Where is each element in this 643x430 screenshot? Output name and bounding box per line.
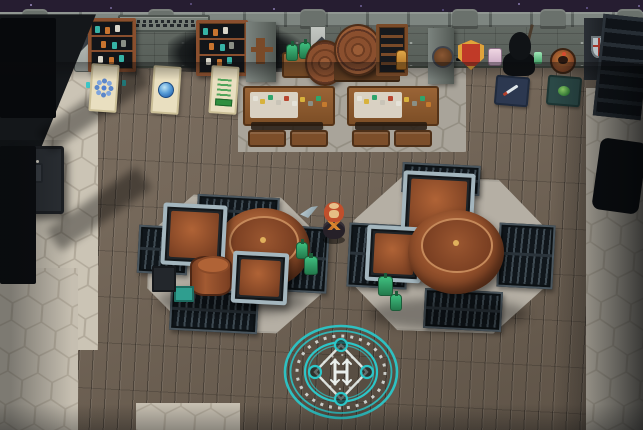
round-shield-icon bbox=[432, 46, 454, 68]
player-hood bbox=[324, 202, 344, 222]
shelf-items bbox=[203, 28, 208, 35]
player-hair bbox=[329, 203, 339, 209]
wall-pillar bbox=[428, 28, 454, 84]
food-items bbox=[253, 96, 258, 101]
green-orb-icon bbox=[558, 85, 571, 96]
display-mat-orb[interactable] bbox=[546, 75, 582, 108]
dark-box bbox=[152, 266, 176, 292]
keg-rack[interactable] bbox=[334, 22, 406, 84]
hex-floor-bottom-left bbox=[0, 268, 78, 430]
bench[interactable] bbox=[394, 130, 432, 147]
bench[interactable] bbox=[248, 130, 286, 147]
dark-column bbox=[0, 146, 36, 284]
player-character[interactable] bbox=[320, 202, 348, 244]
hex-floor-bottom-patch bbox=[136, 403, 240, 430]
dark-object-right bbox=[591, 137, 643, 215]
amber-bottle bbox=[396, 50, 407, 70]
wall-pillar-cap bbox=[452, 9, 478, 29]
banquet-table-right[interactable] bbox=[347, 84, 435, 142]
potion-bottle bbox=[286, 44, 298, 61]
wall-item-green bbox=[534, 52, 542, 64]
food-items bbox=[357, 96, 362, 101]
brewing-station-right[interactable] bbox=[352, 164, 552, 324]
red-gold-shield-icon bbox=[458, 40, 484, 70]
table-top bbox=[347, 86, 439, 126]
cauldron[interactable] bbox=[550, 48, 576, 74]
hooded-npc[interactable] bbox=[502, 30, 538, 78]
green-bottle bbox=[390, 294, 402, 311]
green-bottle bbox=[378, 276, 393, 296]
game-viewport bbox=[0, 0, 643, 430]
framed-crate bbox=[231, 251, 290, 306]
display-rug-scroll[interactable] bbox=[208, 65, 239, 115]
gem-icon bbox=[157, 81, 174, 98]
keg-barrel-large bbox=[334, 24, 382, 76]
green-bar-icon bbox=[215, 98, 232, 106]
bench[interactable] bbox=[290, 130, 328, 147]
npc-hood bbox=[509, 32, 531, 60]
wall-pillar bbox=[246, 22, 276, 82]
bench[interactable] bbox=[352, 130, 390, 147]
banquet-table-left[interactable] bbox=[243, 84, 331, 142]
brewing-station-left[interactable] bbox=[148, 196, 328, 336]
player-straps bbox=[327, 221, 341, 230]
wall-item-pink bbox=[488, 48, 502, 66]
sword-icon bbox=[503, 84, 519, 96]
teal-box bbox=[174, 286, 194, 302]
table-shadow bbox=[355, 122, 427, 130]
player-face bbox=[329, 210, 339, 218]
stars bbox=[30, 4, 32, 6]
dark-cabinet bbox=[0, 18, 56, 118]
table-shadow bbox=[251, 122, 323, 130]
copper-keg bbox=[190, 256, 232, 296]
teleport-circle[interactable] bbox=[280, 320, 402, 424]
display-rug-snowflake[interactable] bbox=[88, 63, 119, 113]
display-mat-sword[interactable] bbox=[494, 75, 530, 108]
wall-pillar-cap bbox=[540, 9, 566, 29]
table-top bbox=[243, 86, 335, 126]
cross-ornament bbox=[256, 38, 265, 64]
shelf-items bbox=[95, 26, 100, 33]
display-rug-gem[interactable] bbox=[150, 65, 181, 115]
snowflake-icon bbox=[101, 85, 106, 90]
green-bottle bbox=[304, 256, 318, 275]
copper-vat bbox=[408, 210, 504, 294]
